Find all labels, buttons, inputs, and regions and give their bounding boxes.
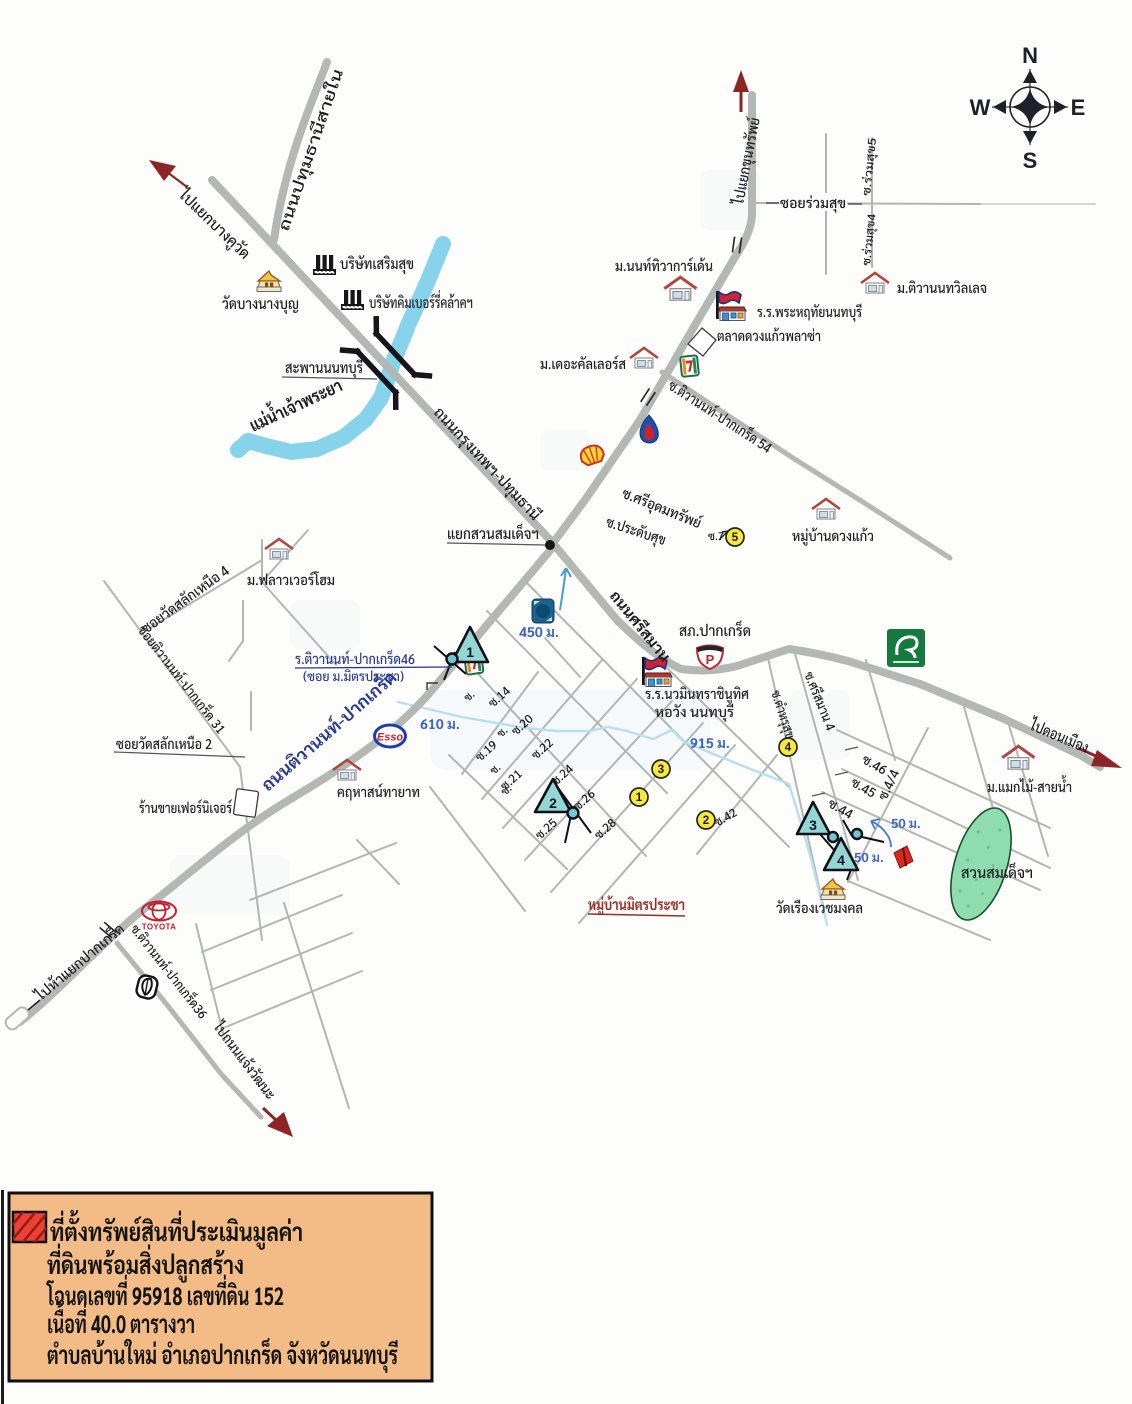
svg-text:3: 3 bbox=[658, 764, 664, 776]
svg-text:2: 2 bbox=[703, 815, 709, 827]
svg-text:S: S bbox=[1023, 148, 1038, 173]
svg-text:W: W bbox=[970, 95, 991, 120]
svg-text:1: 1 bbox=[466, 644, 474, 660]
svg-text:1: 1 bbox=[636, 792, 643, 804]
svg-text:4: 4 bbox=[785, 742, 792, 754]
svg-text:2: 2 bbox=[549, 795, 557, 811]
svg-text:N: N bbox=[1022, 43, 1038, 68]
svg-text:E: E bbox=[1071, 95, 1086, 120]
svg-text:3: 3 bbox=[809, 817, 817, 833]
svg-text:4: 4 bbox=[837, 852, 845, 868]
svg-text:TOYOTA: TOYOTA bbox=[142, 923, 176, 932]
svg-text:Esso: Esso bbox=[377, 732, 404, 744]
svg-text:P: P bbox=[706, 652, 715, 667]
svg-text:5: 5 bbox=[732, 532, 739, 544]
